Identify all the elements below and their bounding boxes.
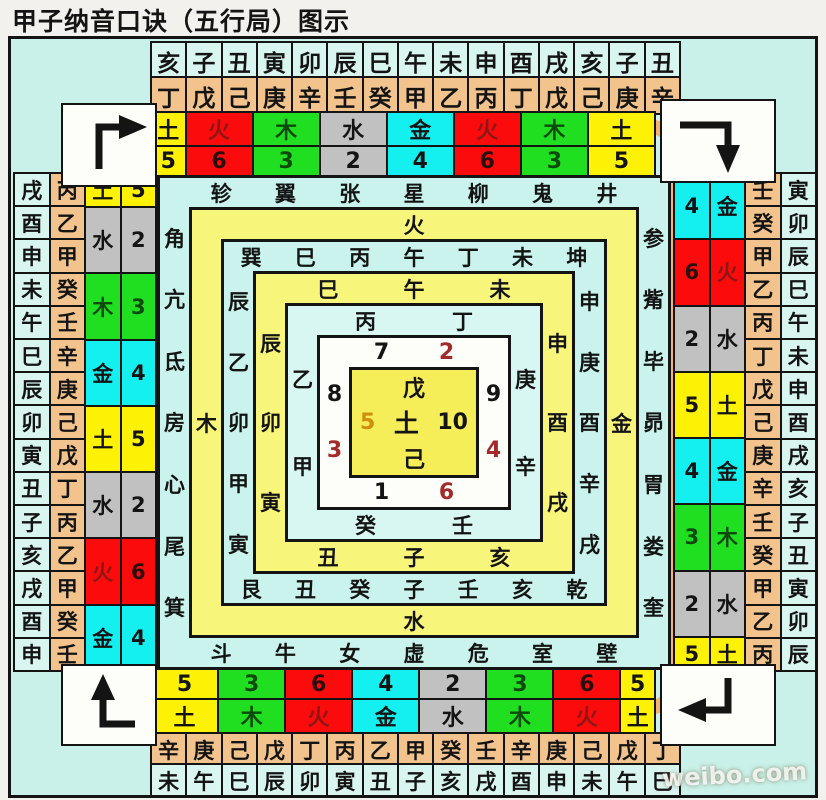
branch-cell: 酉 xyxy=(505,765,538,796)
branch-cell: 寅 xyxy=(782,572,816,603)
cell: 5土 xyxy=(621,670,654,732)
chart-frame: 亥子丑寅卯辰巳午未申酉戌亥子丑 丁戊己庚辛壬癸甲乙丙丁戊己庚辛 土5火6木3水2… xyxy=(8,36,818,798)
ring3-bottom: 艮丑癸子壬亥乾 xyxy=(224,574,604,603)
stem-cell: 壬 xyxy=(51,307,85,338)
element-cell: 火 xyxy=(455,113,520,145)
bottom-elements-row: 5土3木6火4金2水3木6火5土 xyxy=(150,668,656,734)
mansion-char: 危 xyxy=(468,638,489,668)
branch-cell: 午 xyxy=(610,765,643,796)
number-char: 3 xyxy=(327,438,342,463)
mansion-char: 星 xyxy=(403,178,424,208)
stem-cell: 己 xyxy=(223,78,256,113)
ring3-char: 艮 xyxy=(241,574,262,604)
ring-stems: 丙丁 癸壬 乙甲 庚辛 72 16 83 94 戊 5 xyxy=(285,303,543,542)
ring5-char: 庚 xyxy=(515,364,536,394)
mansions-left: 角亢氐房心尾箕 xyxy=(160,207,189,638)
arrow-left-up-icon xyxy=(63,666,155,744)
right-branches-col: 寅卯辰巳午未申酉戌亥子丑寅卯辰 xyxy=(782,174,816,670)
branch-cell: 子 xyxy=(399,765,432,796)
ring4-char: 午 xyxy=(404,274,425,304)
top-branches-row: 亥子丑寅卯辰巳午未申酉戌亥子丑 xyxy=(150,41,681,80)
cell: 水2 xyxy=(321,113,386,175)
core-number-ten: 10 xyxy=(437,410,468,435)
branch-cell: 辰 xyxy=(258,765,291,796)
right-column: 46254325 金火水土金木水土 壬癸甲乙丙丁戊己庚辛壬癸甲乙丙 寅卯辰巳午未… xyxy=(673,172,817,672)
mansions-top: 轸翼张星柳鬼井 xyxy=(189,178,639,207)
ring3-char: 戌 xyxy=(579,529,600,559)
bottom-stems-row: 辛庚己戊丁丙乙甲癸壬辛庚己戊丁 xyxy=(150,732,681,767)
branch-cell: 酉 xyxy=(782,406,816,437)
number-char: 1 xyxy=(374,480,389,505)
top-stems-row: 丁戊己庚辛壬癸甲乙丙丁戊己庚辛 xyxy=(150,76,681,115)
mansion-char: 轸 xyxy=(211,178,232,208)
branch-cell: 辰 xyxy=(328,43,361,78)
number-cell: 4 xyxy=(353,670,418,698)
stem-cell: 丁 xyxy=(746,340,780,371)
left-numbers-col: 52345264 xyxy=(122,174,156,670)
ring3-char: 亥 xyxy=(512,574,533,604)
element-cell: 火 xyxy=(187,113,252,145)
branch-cell: 酉 xyxy=(15,606,49,637)
ring5-char: 丁 xyxy=(452,306,473,336)
mansion-char: 参 xyxy=(643,223,664,253)
ring5-right: 庚辛 xyxy=(511,335,540,510)
mansion-char: 尾 xyxy=(164,531,185,561)
element-cell: 金 xyxy=(711,439,745,503)
ring3-char: 巽 xyxy=(241,242,262,272)
core-earth-label: 土 xyxy=(394,404,419,440)
ring3-char: 乙 xyxy=(228,347,249,377)
mansion-char: 亢 xyxy=(164,284,185,314)
ring3-char: 卯 xyxy=(228,407,249,437)
element-cell: 土 xyxy=(621,700,654,732)
branch-cell: 子 xyxy=(782,506,816,537)
mansion-char: 胃 xyxy=(643,469,664,499)
flow-corner-bottom-right xyxy=(660,664,776,746)
stem-cell: 庚 xyxy=(610,78,643,113)
mansion-char: 室 xyxy=(532,638,553,668)
ring6-left: 83 xyxy=(320,367,349,478)
element-metal-label: 金 xyxy=(607,239,636,606)
number-cell: 3 xyxy=(487,670,552,698)
mansion-char: 箕 xyxy=(164,592,185,622)
cell: 土5 xyxy=(589,113,654,175)
stem-cell: 辛 xyxy=(505,734,538,765)
element-cell: 木 xyxy=(219,700,284,732)
branch-cell: 亥 xyxy=(152,43,185,78)
ring3-char: 坤 xyxy=(566,242,587,272)
ring3-right: 申庚酉辛戌 xyxy=(575,271,604,574)
number-cell: 2 xyxy=(321,147,386,175)
ring3-char: 甲 xyxy=(228,468,249,498)
stem-cell: 戊 xyxy=(540,78,573,113)
core-stem-wu: 戊 xyxy=(403,371,425,403)
number-cell: 3 xyxy=(219,670,284,698)
element-cell: 木 xyxy=(86,274,120,338)
stem-cell: 丁 xyxy=(293,734,326,765)
branch-cell: 未 xyxy=(782,340,816,371)
mansions-right: 参觜毕昴胃娄奎 xyxy=(639,207,668,638)
branch-cell: 子 xyxy=(15,506,49,537)
number-cell: 4 xyxy=(675,439,709,503)
stem-cell: 丁 xyxy=(51,473,85,504)
mansion-char: 昴 xyxy=(643,407,664,437)
ring-five-elements: 火 水 木 金 巽巳丙午丁未坤 艮丑癸子壬亥乾 辰乙卯甲寅 申庚酉辛戌 巳午未 … xyxy=(189,207,639,638)
mansion-char: 毕 xyxy=(643,346,664,376)
watermark: weibo.com xyxy=(661,757,807,793)
mansion-char: 柳 xyxy=(468,178,489,208)
arrow-down-left-icon xyxy=(662,666,774,744)
branch-cell: 戌 xyxy=(782,440,816,471)
stem-cell: 癸 xyxy=(51,274,85,305)
number-cell: 3 xyxy=(675,505,709,569)
branch-cell: 午 xyxy=(187,765,220,796)
number-cell: 5 xyxy=(675,373,709,437)
arrow-right-down-icon xyxy=(662,101,774,181)
stem-cell: 壬 xyxy=(469,734,502,765)
cell: 3木 xyxy=(487,670,552,732)
ring3-char: 丑 xyxy=(295,574,316,604)
branch-cell: 亥 xyxy=(782,473,816,504)
branch-cell: 卯 xyxy=(15,406,49,437)
ring3-char: 子 xyxy=(403,574,424,604)
stem-cell: 壬 xyxy=(746,506,780,537)
stem-cell: 甲 xyxy=(399,78,432,113)
right-stems-col: 壬癸甲乙丙丁戊己庚辛壬癸甲乙丙 xyxy=(746,174,780,670)
ring3-char: 乾 xyxy=(566,574,587,604)
element-cell: 水 xyxy=(420,700,485,732)
stem-cell: 戊 xyxy=(610,734,643,765)
ring4-char: 辰 xyxy=(260,328,281,358)
stem-cell: 庚 xyxy=(540,734,573,765)
branch-cell: 丑 xyxy=(15,473,49,504)
number-cell: 2 xyxy=(122,208,156,272)
center-core: 戊 5 土 10 己 xyxy=(349,367,479,478)
number-cell: 3 xyxy=(122,274,156,338)
number-char: 8 xyxy=(327,382,342,407)
number-cell: 6 xyxy=(455,147,520,175)
ring4-char: 寅 xyxy=(260,487,281,517)
number-cell: 6 xyxy=(286,670,351,698)
ring-branches: 巳午未 丑子亥 辰卯寅 申酉戌 丙丁 癸壬 乙甲 庚辛 72 16 83 94 xyxy=(253,271,575,574)
stem-cell: 戊 xyxy=(746,373,780,404)
branch-cell: 卯 xyxy=(782,207,816,238)
mansion-char: 张 xyxy=(339,178,360,208)
ring-trigram-stems-branches: 巽巳丙午丁未坤 艮丑癸子壬亥乾 辰乙卯甲寅 申庚酉辛戌 巳午未 丑子亥 辰卯寅 … xyxy=(221,239,607,606)
branch-cell: 巳 xyxy=(15,340,49,371)
mansion-char: 娄 xyxy=(643,531,664,561)
flow-corner-bottom-left xyxy=(61,664,157,746)
stem-cell: 戊 xyxy=(258,734,291,765)
branch-cell: 戌 xyxy=(540,43,573,78)
branch-cell: 寅 xyxy=(258,43,291,78)
branch-cell: 卯 xyxy=(782,606,816,637)
stem-cell: 甲 xyxy=(746,240,780,271)
number-char: 2 xyxy=(439,340,454,365)
ring6-top: 72 xyxy=(349,338,479,367)
branch-cell: 亥 xyxy=(15,539,49,570)
branch-cell: 亥 xyxy=(575,43,608,78)
branch-cell: 巳 xyxy=(782,274,816,305)
element-fire-label: 火 xyxy=(192,210,636,239)
stem-cell: 己 xyxy=(575,78,608,113)
stem-cell: 癸 xyxy=(364,78,397,113)
mansion-char: 角 xyxy=(164,223,185,253)
branch-cell: 未 xyxy=(15,274,49,305)
ring3-char: 酉 xyxy=(579,407,600,437)
cell: 6火 xyxy=(554,670,619,732)
stem-cell: 癸 xyxy=(51,606,85,637)
branch-cell: 酉 xyxy=(505,43,538,78)
stem-cell: 戊 xyxy=(51,440,85,471)
flow-corner-top-left xyxy=(61,103,157,187)
element-cell: 金 xyxy=(388,113,453,145)
element-cell: 火 xyxy=(554,700,619,732)
mansion-char: 房 xyxy=(164,407,185,437)
stem-cell: 戊 xyxy=(187,78,220,113)
number-cell: 5 xyxy=(621,670,654,698)
ring4-top: 巳午未 xyxy=(285,274,543,303)
ring4-right: 申酉戌 xyxy=(543,303,572,542)
branch-cell: 辰 xyxy=(782,240,816,271)
stem-cell: 丙 xyxy=(746,307,780,338)
stem-cell: 甲 xyxy=(399,734,432,765)
branch-cell: 申 xyxy=(15,639,49,670)
number-cell: 2 xyxy=(122,473,156,537)
cell: 木3 xyxy=(522,113,587,175)
branch-cell: 巳 xyxy=(364,43,397,78)
branch-cell: 丑 xyxy=(223,43,256,78)
ring3-char: 寅 xyxy=(228,529,249,559)
number-cell: 6 xyxy=(122,539,156,603)
element-cell: 木 xyxy=(522,113,587,145)
ring5-char: 辛 xyxy=(515,451,536,481)
mansion-char: 觜 xyxy=(643,284,664,314)
cell: 2水 xyxy=(420,670,485,732)
number-cell: 2 xyxy=(675,572,709,636)
number-cell: 5 xyxy=(122,407,156,471)
ring3-char: 未 xyxy=(512,242,533,272)
branch-cell: 未 xyxy=(152,765,185,796)
element-cell: 金 xyxy=(86,341,120,405)
ring3-char: 辛 xyxy=(579,468,600,498)
element-cell: 水 xyxy=(711,572,745,636)
branch-cell: 未 xyxy=(434,43,467,78)
mansions-bottom: 斗牛女虚危室壁 xyxy=(189,638,639,667)
branch-cell: 辰 xyxy=(782,639,816,670)
ring3-char: 壬 xyxy=(458,574,479,604)
left-column: 戌酉申未午巳辰卯寅丑子亥戌酉申 丙乙甲癸壬辛庚己戊丁丙乙甲癸壬 土水木金土水火金… xyxy=(13,172,157,672)
ring5-char: 癸 xyxy=(355,510,376,540)
right-elements-col: 金火水土金木水土 xyxy=(711,174,745,670)
flow-corner-top-right xyxy=(660,99,776,183)
branch-cell: 午 xyxy=(15,307,49,338)
element-cell: 金 xyxy=(711,174,745,238)
number-char: 6 xyxy=(439,480,454,505)
number-cell: 3 xyxy=(254,147,319,175)
stem-cell: 乙 xyxy=(51,539,85,570)
stem-cell: 庚 xyxy=(258,78,291,113)
element-cell: 水 xyxy=(711,307,745,371)
arrow-up-right-icon xyxy=(63,105,155,185)
branch-cell: 戌 xyxy=(15,174,49,205)
stem-cell: 乙 xyxy=(51,207,85,238)
branch-cell: 辰 xyxy=(15,373,49,404)
branch-cell: 申 xyxy=(782,373,816,404)
branch-cell: 申 xyxy=(540,765,573,796)
number-char: 9 xyxy=(486,382,501,407)
cell: 金4 xyxy=(388,113,453,175)
core-number-five: 5 xyxy=(360,410,375,435)
ring4-char: 子 xyxy=(404,542,425,572)
stem-cell: 壬 xyxy=(328,78,361,113)
stem-cell: 己 xyxy=(746,406,780,437)
branch-cell: 丑 xyxy=(646,43,679,78)
number-cell: 4 xyxy=(122,341,156,405)
branch-cell: 寅 xyxy=(782,174,816,205)
element-cell: 金 xyxy=(86,606,120,670)
cell: 5土 xyxy=(152,670,217,732)
center-diagram: 轸翼张星柳鬼井 斗牛女虚危室壁 角亢氐房心尾箕 参觜毕昴胃娄奎 火 水 木 金 … xyxy=(157,175,671,670)
stem-cell: 丙 xyxy=(469,78,502,113)
element-cell: 水 xyxy=(321,113,386,145)
branch-cell: 子 xyxy=(187,43,220,78)
branch-cell: 戌 xyxy=(15,572,49,603)
branch-cell: 卯 xyxy=(293,765,326,796)
ring6-bottom: 16 xyxy=(349,478,479,507)
branch-cell: 丑 xyxy=(364,765,397,796)
stem-cell: 癸 xyxy=(434,734,467,765)
cell: 6火 xyxy=(286,670,351,732)
number-cell: 2 xyxy=(675,307,709,371)
number-cell: 6 xyxy=(554,670,619,698)
number-cell: 5 xyxy=(589,147,654,175)
mansion-char: 井 xyxy=(596,178,617,208)
branch-cell: 未 xyxy=(575,765,608,796)
right-numbers-col: 46254325 xyxy=(675,174,709,670)
left-branches-col: 戌酉申未午巳辰卯寅丑子亥戌酉申 xyxy=(15,174,49,670)
element-cell: 土 xyxy=(589,113,654,145)
element-cell: 木 xyxy=(711,505,745,569)
stem-cell: 己 xyxy=(575,734,608,765)
ring4-char: 酉 xyxy=(547,407,568,437)
ring3-left: 辰乙卯甲寅 xyxy=(224,271,253,574)
number-char: 7 xyxy=(374,340,389,365)
branch-cell: 申 xyxy=(469,43,502,78)
cell: 火6 xyxy=(455,113,520,175)
mansion-char: 牛 xyxy=(275,638,296,668)
branch-cell: 酉 xyxy=(15,207,49,238)
stem-cell: 癸 xyxy=(746,539,780,570)
stem-cell: 庚 xyxy=(187,734,220,765)
mansion-char: 奎 xyxy=(643,592,664,622)
element-cell: 水 xyxy=(86,208,120,272)
element-cell: 火 xyxy=(286,700,351,732)
cell: 3木 xyxy=(219,670,284,732)
ring5-bottom: 癸壬 xyxy=(317,510,511,539)
stem-cell: 乙 xyxy=(364,734,397,765)
branch-cell: 亥 xyxy=(434,765,467,796)
left-stems-col: 丙乙甲癸壬辛庚己戊丁丙乙甲癸壬 xyxy=(51,174,85,670)
number-cell: 4 xyxy=(675,174,709,238)
number-cell: 5 xyxy=(152,670,217,698)
ring5-char: 壬 xyxy=(452,510,473,540)
ring3-char: 庚 xyxy=(579,347,600,377)
ring4-char: 卯 xyxy=(260,407,281,437)
stem-cell: 甲 xyxy=(51,240,85,271)
branch-cell: 午 xyxy=(399,43,432,78)
number-char: 4 xyxy=(486,438,501,463)
element-cell: 火 xyxy=(711,240,745,304)
ring4-bottom: 丑子亥 xyxy=(285,542,543,571)
ring5-left: 乙甲 xyxy=(288,335,317,510)
core-stem-ji: 己 xyxy=(403,442,425,474)
stem-cell: 庚 xyxy=(746,440,780,471)
stem-cell: 丁 xyxy=(505,78,538,113)
stem-cell: 乙 xyxy=(746,274,780,305)
stem-cell: 癸 xyxy=(746,207,780,238)
element-cell: 木 xyxy=(254,113,319,145)
mansion-char: 女 xyxy=(339,638,360,668)
mansion-char: 翼 xyxy=(275,178,296,208)
number-cell: 6 xyxy=(187,147,252,175)
ring-numbers: 72 16 83 94 戊 5 土 10 己 xyxy=(317,335,511,510)
element-cell: 金 xyxy=(353,700,418,732)
ring5-char: 丙 xyxy=(355,306,376,336)
mansion-char: 虚 xyxy=(403,638,424,668)
stem-cell: 乙 xyxy=(434,78,467,113)
mansion-char: 鬼 xyxy=(532,178,553,208)
ring3-char: 癸 xyxy=(349,574,370,604)
ring3-char: 申 xyxy=(579,286,600,316)
element-cell: 土 xyxy=(711,373,745,437)
stem-cell: 辛 xyxy=(51,340,85,371)
branch-cell: 巳 xyxy=(223,765,256,796)
element-water-label: 水 xyxy=(192,606,636,635)
element-cell: 土 xyxy=(86,407,120,471)
element-cell: 火 xyxy=(86,539,120,603)
stem-cell: 庚 xyxy=(51,373,85,404)
stem-cell: 乙 xyxy=(746,606,780,637)
ring5-char: 乙 xyxy=(292,364,313,394)
number-cell: 2 xyxy=(420,670,485,698)
page-title: 甲子纳音口诀（五行局）图示 xyxy=(12,2,350,38)
branch-cell: 子 xyxy=(610,43,643,78)
branch-cell: 寅 xyxy=(328,765,361,796)
ring4-char: 亥 xyxy=(490,542,511,572)
stem-cell: 丙 xyxy=(51,506,85,537)
number-cell: 4 xyxy=(122,606,156,670)
ring4-char: 戌 xyxy=(547,487,568,517)
number-cell: 6 xyxy=(675,240,709,304)
ring5-top: 丙丁 xyxy=(317,306,511,335)
stem-cell: 己 xyxy=(223,734,256,765)
element-cell: 水 xyxy=(86,473,120,537)
stem-cell: 丙 xyxy=(328,734,361,765)
left-elements-col: 土水木金土水火金 xyxy=(86,174,120,670)
element-cell: 木 xyxy=(487,700,552,732)
ring3-char: 辰 xyxy=(228,286,249,316)
branch-cell: 丑 xyxy=(782,539,816,570)
ring4-char: 丑 xyxy=(318,542,339,572)
cell: 4金 xyxy=(353,670,418,732)
ring6-right: 94 xyxy=(479,367,508,478)
ring5-char: 甲 xyxy=(292,451,313,481)
number-cell: 3 xyxy=(522,147,587,175)
branch-cell: 戌 xyxy=(469,765,502,796)
ring3-char: 巳 xyxy=(295,242,316,272)
stem-cell: 己 xyxy=(51,406,85,437)
